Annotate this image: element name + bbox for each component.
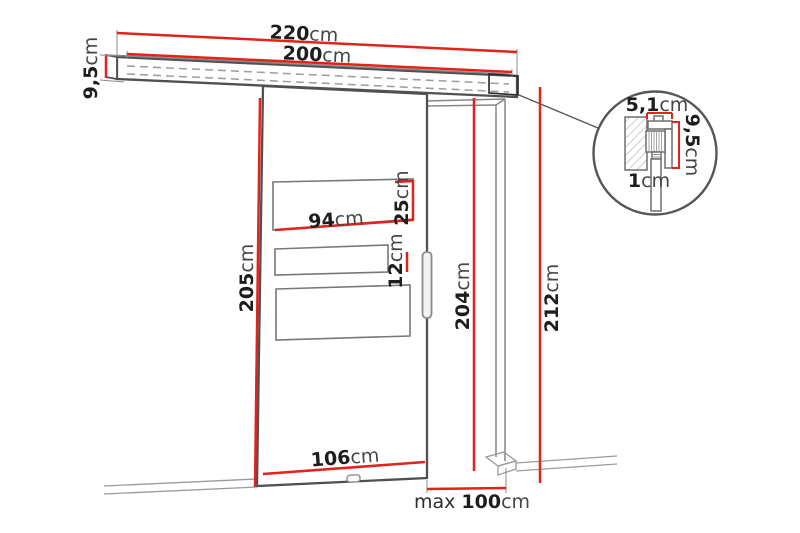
label-detail-thickness: 1cm — [628, 170, 670, 192]
label-glass-width: 94cm — [308, 207, 365, 233]
label-glass-top-height: 25cm — [391, 170, 413, 225]
label-rail-inner-width: 200cm — [282, 42, 352, 67]
wall-plate-hatched — [625, 117, 647, 170]
detail-connector-line — [519, 95, 598, 128]
rail-profile-cap — [648, 121, 672, 129]
label-detail-width: 5,1cm — [626, 94, 689, 116]
label-opening-height: 204cm — [452, 262, 474, 331]
door-handle — [423, 252, 432, 318]
label-detail-height: 9,5cm — [681, 114, 703, 177]
label-door-height: 205cm — [236, 244, 258, 313]
floor-guide — [347, 475, 360, 483]
glass-inset-middle — [275, 245, 388, 275]
label-glass-mid-height: 12cm — [385, 233, 407, 288]
label-total-height: 212cm — [541, 264, 563, 333]
diagram-canvas: 220cm 200cm 9,5cm 205cm 94cm 25cm 12cm 1… — [0, 0, 800, 533]
floor-lines — [104, 479, 257, 494]
detail-circle: 5,1cm 9,5cm 1cm — [594, 92, 717, 215]
roller-wheel — [646, 131, 665, 152]
label-rail-height: 9,5cm — [80, 37, 102, 100]
glass-inset-bottom — [276, 285, 410, 340]
rail-profile-flange — [665, 129, 672, 168]
label-max-opening-width: max 100cm — [414, 491, 530, 513]
hanger-bolt — [652, 152, 661, 159]
sliding-door-diagram: 220cm 200cm 9,5cm 205cm 94cm 25cm 12cm 1… — [0, 0, 800, 533]
